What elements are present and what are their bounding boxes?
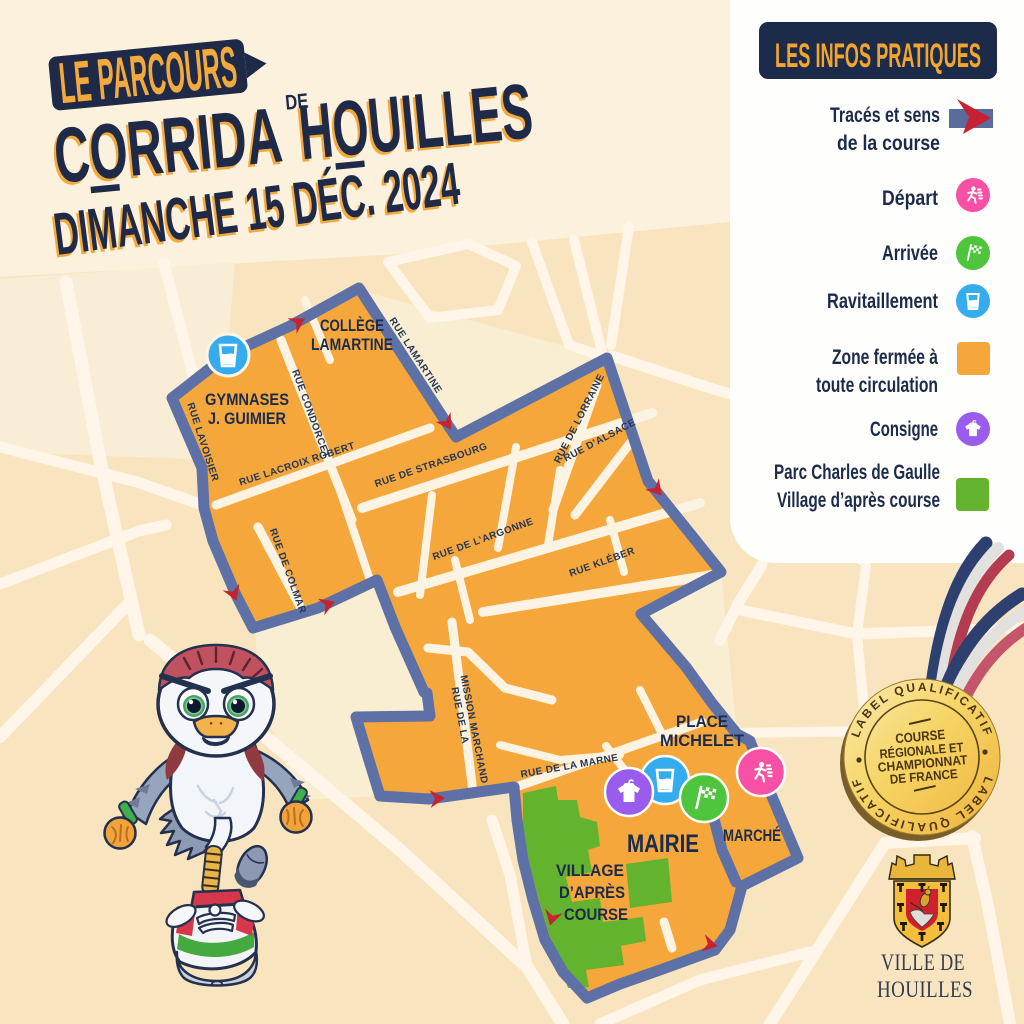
svg-text:PLACE: PLACE — [676, 713, 728, 731]
svg-text:J. GUIMIER: J. GUIMIER — [208, 410, 286, 428]
svg-text:COLLÈGE: COLLÈGE — [320, 316, 384, 335]
svg-text:COURSE: COURSE — [564, 906, 628, 924]
svg-text:Consigne: Consigne — [870, 418, 938, 441]
svg-text:Ravitaillement: Ravitaillement — [827, 290, 938, 313]
svg-text:MAIRIE: MAIRIE — [627, 830, 699, 858]
svg-text:VILLE DE: VILLE DE — [881, 950, 965, 975]
svg-text:Zone fermée à: Zone fermée à — [832, 346, 938, 369]
svg-text:Tracés et sens: Tracés et sens — [830, 104, 940, 127]
svg-text:MICHELET: MICHELET — [660, 732, 744, 750]
svg-text:Village d’après course: Village d’après course — [777, 489, 940, 512]
svg-text:LES INFOS PRATIQUES: LES INFOS PRATIQUES — [775, 37, 981, 75]
svg-text:toute circulation: toute circulation — [816, 374, 938, 397]
svg-text:D’APRÈS: D’APRÈS — [559, 883, 625, 902]
svg-text:VILLAGE: VILLAGE — [556, 862, 624, 880]
svg-text:de la course: de la course — [837, 132, 940, 155]
svg-text:Départ: Départ — [882, 187, 938, 210]
svg-text:LAMARTINE: LAMARTINE — [311, 336, 393, 354]
svg-text:Arrivée: Arrivée — [882, 242, 938, 265]
svg-text:MARCHÉ: MARCHÉ — [723, 826, 781, 845]
svg-text:Parc Charles de Gaulle: Parc Charles de Gaulle — [774, 461, 940, 484]
svg-text:HOUILLES: HOUILLES — [877, 977, 973, 1002]
svg-text:GYMNASES: GYMNASES — [205, 391, 289, 409]
